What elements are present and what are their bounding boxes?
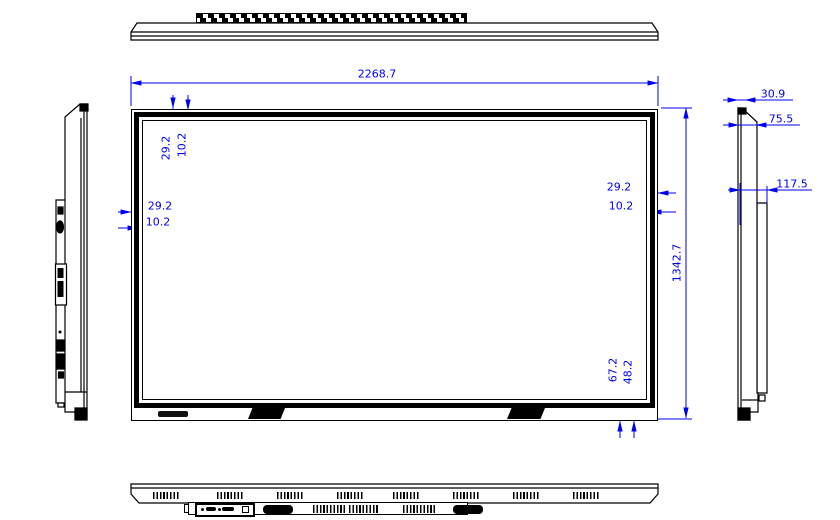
dim-body-depth: 75.5: [769, 114, 794, 125]
bottom-vent-group-8: [573, 492, 599, 499]
right-side-view-linework: [738, 108, 767, 420]
right-view-bottom-foot: [738, 408, 750, 420]
dim-front-thickness: 30.9: [761, 89, 786, 100]
port-block-2: [57, 354, 64, 369]
speaker-grille-right: [507, 408, 545, 419]
right-view-back-box: [757, 203, 767, 393]
dim-top-bezel: 29.2: [161, 136, 172, 161]
bottom-vent-group-4: [337, 492, 363, 499]
bottom-protrusion-tab: [184, 504, 189, 513]
brand-logo: [158, 411, 188, 417]
connector-port-1: [206, 507, 216, 511]
speaker-grille-left: [248, 408, 285, 419]
bottom-vent-group-5: [393, 492, 419, 499]
left-view-bottom-foot: [75, 408, 87, 419]
right-view-top-cap: [738, 108, 746, 114]
protrusion-vent-group-1: [313, 505, 345, 513]
protrusion-vent-group-3: [403, 505, 437, 513]
connector-port-dot-2: [218, 508, 221, 511]
bottom-handle-left: [263, 505, 293, 514]
top-vent-strip: [196, 13, 467, 23]
drawing-canvas: 2268.7 1342.7 29.2 10.2 29.2 10.2 29.2 1…: [0, 0, 840, 520]
port-dot: [59, 331, 62, 334]
dim-left-border: 10.2: [146, 217, 171, 228]
port-block-1: [57, 340, 64, 351]
bottom-vent-group-6: [453, 492, 479, 499]
screen-area: [142, 120, 647, 400]
connector-detail-2: [58, 281, 64, 297]
left-view-small-foot: [58, 403, 64, 407]
bottom-vent-group-3: [277, 492, 303, 499]
connector-port-square: [242, 506, 249, 513]
bottom-vent-group-7: [513, 492, 539, 499]
dim-bottom-border: 48.2: [623, 360, 634, 385]
port-oval: [57, 221, 64, 233]
dim-total-depth: 117.5: [776, 179, 808, 190]
protrusion-vent-group-2: [349, 505, 379, 513]
bottom-vent-group-1: [153, 492, 179, 499]
connector-detail-1: [58, 268, 64, 278]
left-view-top-cap: [80, 104, 88, 111]
dim-right-bezel: 29.2: [607, 182, 632, 193]
port-switch: [58, 207, 63, 214]
top-view-linework: [131, 23, 658, 40]
dim-overall-height: 1342.7: [672, 244, 683, 283]
dim-bottom-bezel: 67.2: [608, 358, 619, 383]
bottom-vent-group-2: [217, 492, 243, 499]
connector-port-dot-1: [201, 508, 204, 511]
dim-right-border: 10.2: [609, 201, 634, 212]
bottom-handle-right: [453, 505, 483, 514]
connector-port-2: [222, 507, 234, 511]
right-view-notch: [759, 395, 765, 401]
dim-left-bezel: 29.2: [148, 201, 173, 212]
dim-top-border: 10.2: [177, 133, 188, 158]
port-block-3: [59, 372, 64, 378]
left-side-view-linework: [56, 104, 89, 420]
dim-overall-width: 2268.7: [358, 69, 397, 80]
